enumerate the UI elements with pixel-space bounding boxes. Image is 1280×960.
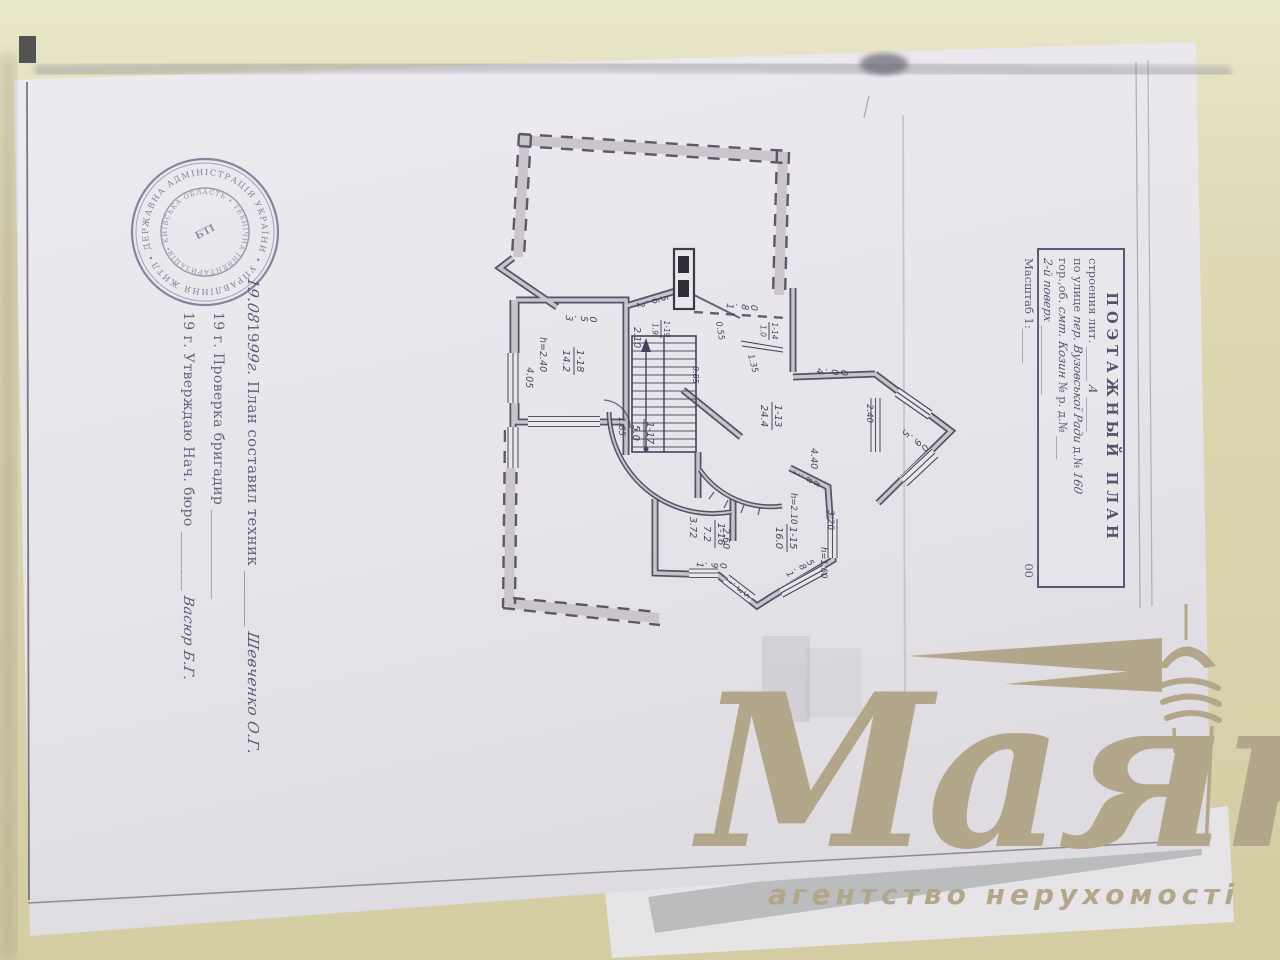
watermark-tagline: агентство нерухомості (768, 878, 1248, 911)
photo-of-floorplan-document: { "watermark": { "brand": "Маяк", "tagli… (0, 0, 1280, 960)
watermark-brand: Маяк (698, 666, 1280, 896)
